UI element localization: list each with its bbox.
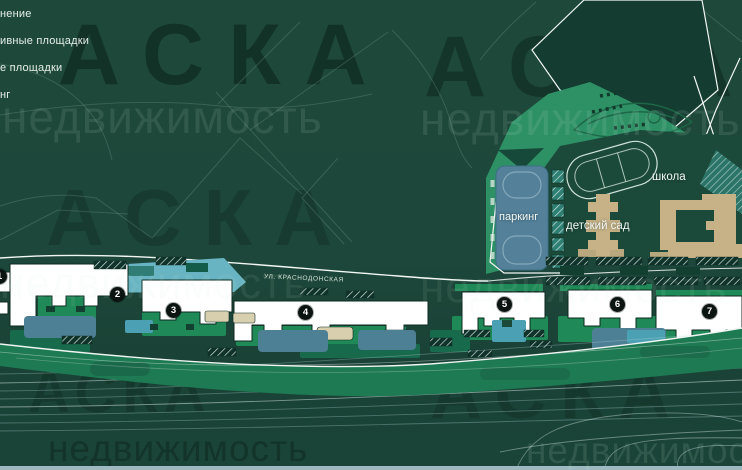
parking-label: паркинг: [499, 211, 538, 223]
map-artwork: [0, 0, 742, 470]
kindergarten-label: детский сад: [566, 220, 630, 233]
masterplan-canvas[interactable]: АСКА АСКА АСКА АСКА АСКА недвижимость: [0, 0, 742, 470]
building-7-badge[interactable]: 7: [702, 304, 717, 319]
building-5-badge[interactable]: 5: [497, 297, 512, 312]
building-3-badge[interactable]: 3: [166, 303, 181, 318]
building-6-badge[interactable]: 6: [610, 297, 625, 312]
school-label: школа: [652, 171, 686, 184]
building-4-badge[interactable]: 4: [298, 305, 313, 320]
building-2-badge[interactable]: 2: [110, 287, 125, 302]
bottom-streets: [500, 413, 742, 470]
residential-zone: [0, 257, 742, 358]
shore-strip: [0, 466, 742, 470]
